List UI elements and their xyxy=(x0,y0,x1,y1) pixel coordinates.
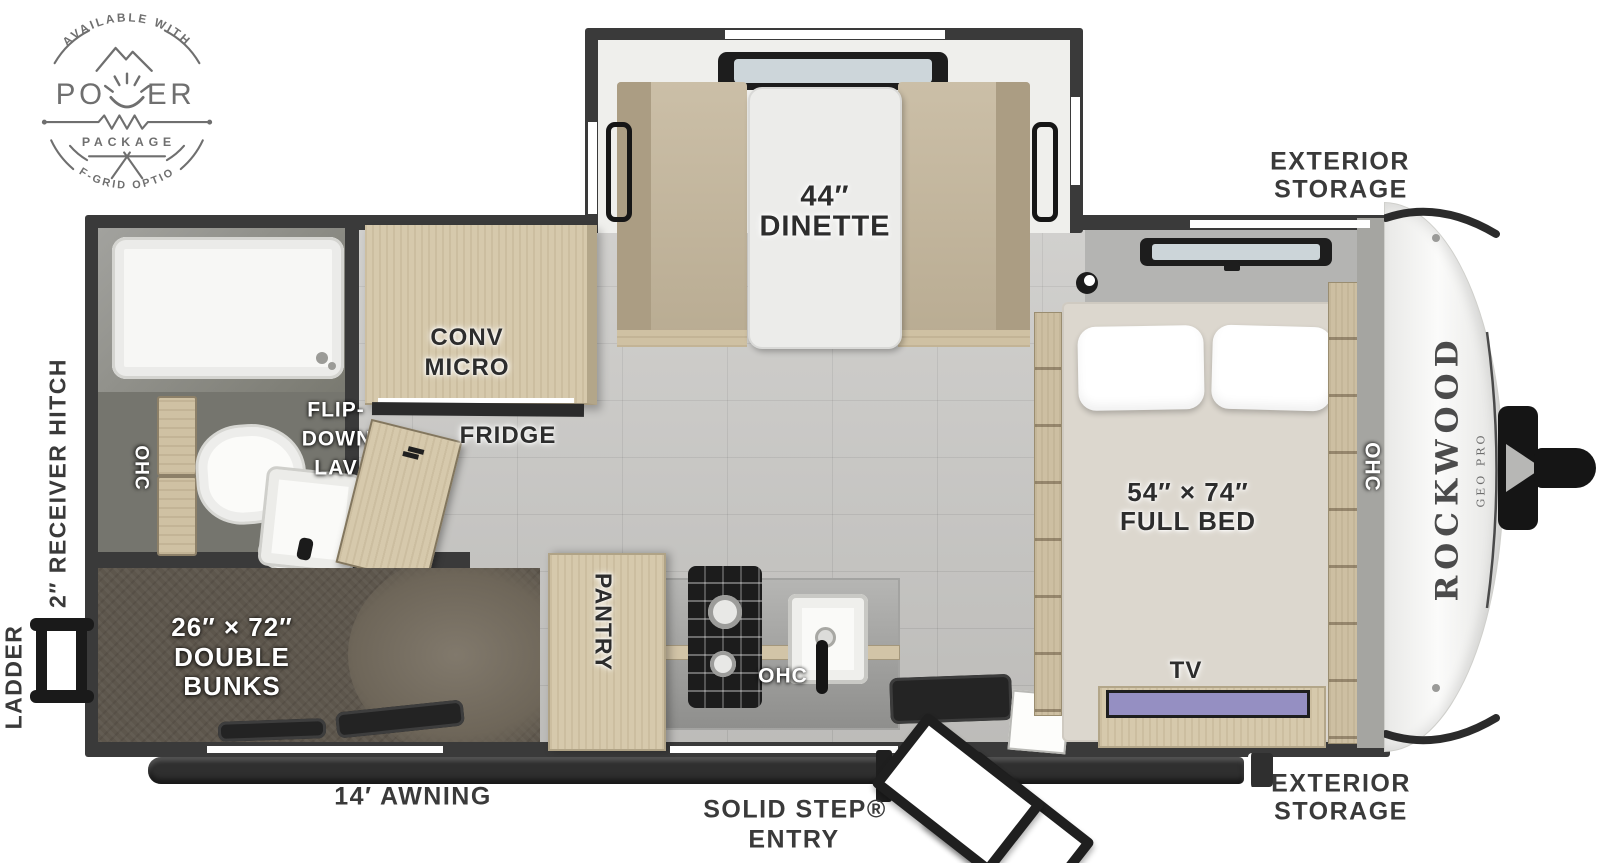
ladder-label: LADDER xyxy=(3,625,26,730)
brand-name: ROCKWOOD xyxy=(1433,335,1464,602)
bunks-label-line3: BUNKS xyxy=(183,673,280,699)
bed-ohc-cabinet xyxy=(1328,282,1360,744)
bunk-mat-left xyxy=(218,718,327,742)
dinette-name-label: DINETTE xyxy=(759,213,890,242)
fridge-label: FRIDGE xyxy=(460,424,557,448)
solid-step-label-line2: ENTRY xyxy=(748,828,839,853)
bunks-size-label: 26″ × 72″ xyxy=(171,614,292,640)
jack-handle xyxy=(1534,448,1596,488)
bed-size-label: 54″ × 74″ xyxy=(1127,479,1248,505)
exterior-storage-bottom-line1: EXTERIOR xyxy=(1271,772,1411,797)
grab-handle-left-icon xyxy=(606,122,632,222)
awning-bar xyxy=(148,757,1244,784)
bath-ohc-label: OHC xyxy=(132,445,151,490)
bed-name-label: FULL BED xyxy=(1120,508,1256,534)
sun-icon xyxy=(105,74,149,107)
exterior-storage-bottom-line2: STORAGE xyxy=(1274,800,1408,825)
skylight-latch-icon xyxy=(1224,262,1240,271)
brand-model: GEO PRO xyxy=(1476,432,1487,507)
lav-label-line3: LAV xyxy=(314,458,357,479)
exterior-storage-top-line2: STORAGE xyxy=(1274,178,1408,203)
front-top-window-slit xyxy=(1190,220,1370,228)
exterior-storage-top-line1: EXTERIOR xyxy=(1270,150,1410,175)
reading-light-lens xyxy=(1084,275,1095,286)
slideout-top-window-slit xyxy=(725,30,945,39)
sink-faucet-icon xyxy=(816,640,828,694)
pillow-left xyxy=(1077,325,1204,411)
mountains-icon xyxy=(97,48,152,71)
pillow-right xyxy=(1211,324,1333,411)
tent-icon xyxy=(89,153,165,179)
stove xyxy=(688,566,762,708)
grab-handle-right-icon xyxy=(1032,122,1058,222)
dinette-bench-right-base xyxy=(898,330,1030,347)
bunk-area xyxy=(98,568,540,742)
slideout-right-window-slit xyxy=(1071,97,1080,185)
ladder-icon xyxy=(28,614,98,714)
power-package-badge: AVAILABLE WITH PO ER PACKAGE OFF-GRID OP… xyxy=(32,10,222,200)
dinette-size-label: 44″ xyxy=(800,183,849,212)
tv-label: TV xyxy=(1170,659,1203,683)
ladder-rail-left xyxy=(36,618,47,703)
badge-power-left: PO xyxy=(56,78,106,111)
bunks-label-line2: DOUBLE xyxy=(174,644,290,670)
receiver-hitch-label: 2″ RECEIVER HITCH xyxy=(47,358,70,608)
entry-floor-mat xyxy=(889,674,1013,724)
bed-skylight-glass xyxy=(1152,244,1320,260)
awning-label: 14′ AWNING xyxy=(334,785,492,810)
solid-step-label-line1: SOLID STEP® xyxy=(703,798,887,823)
svg-text:AVAILABLE WITH: AVAILABLE WITH xyxy=(60,10,195,49)
slideout-left-window-slit xyxy=(588,122,597,214)
badge-top-arc-text: AVAILABLE WITH xyxy=(60,10,195,49)
lav-label-line2: DOWN xyxy=(302,429,373,450)
badge-package-text: PACKAGE xyxy=(82,135,176,149)
ladder-rail-right xyxy=(76,618,87,703)
bed-ohc-label: OHC xyxy=(1362,442,1383,492)
lav-label-line1: FLIP- xyxy=(307,400,365,421)
conv-micro-label-line2: MICRO xyxy=(425,356,510,380)
dinette-bench-left-base xyxy=(617,330,747,347)
floorplan-canvas: AVAILABLE WITH PO ER PACKAGE OFF-GRID OP… xyxy=(0,0,1600,863)
resistor-line-icon xyxy=(42,115,212,128)
wardrobe-divider xyxy=(1034,312,1062,716)
dinette-window-glass xyxy=(734,59,932,83)
conv-micro-label-line1: CONV xyxy=(430,326,503,350)
awning-bracket xyxy=(1248,753,1273,787)
kitchen-ohc-label: OHC xyxy=(758,666,808,687)
bath-ohc-cabinet-door-lower xyxy=(157,476,197,556)
tv-screen xyxy=(1106,690,1310,718)
fridge-base xyxy=(372,402,584,417)
stove-burner-small xyxy=(710,651,736,677)
bunk-window-slit xyxy=(207,746,443,753)
kitchen-window-slit xyxy=(670,746,898,753)
shower-fixture-icon xyxy=(316,352,328,364)
dinette-bench-right-backrest xyxy=(996,82,1030,347)
badge-power-right: ER xyxy=(147,78,196,111)
shower-pan xyxy=(112,237,344,379)
pantry-label: PANTRY xyxy=(592,573,615,671)
bath-ohc-cabinet-door-upper xyxy=(157,396,197,476)
stove-burner-large xyxy=(708,595,742,629)
